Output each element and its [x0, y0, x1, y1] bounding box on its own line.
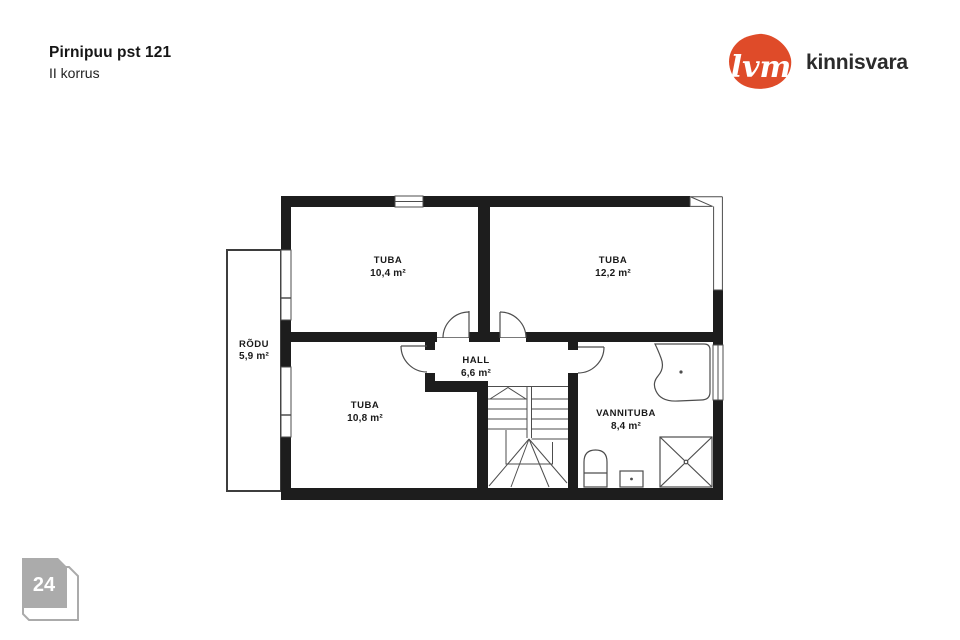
- room-label-tuba-1: TUBA 10,4 m²: [370, 255, 406, 279]
- floor-plan-svg: lvm kinnisvara: [0, 0, 960, 640]
- room-name: VANNITUBA: [596, 408, 656, 419]
- door-tuba-2: [500, 312, 526, 338]
- room-name: HALL: [462, 355, 489, 366]
- sink: [620, 471, 643, 487]
- room-label-vannituba: VANNITUBA 8,4 m²: [596, 408, 656, 432]
- room-labels: TUBA 10,4 m² TUBA 12,2 m² RÕDU 5,9 m² TU…: [239, 255, 656, 432]
- toilet: [584, 450, 607, 487]
- bathtub: [654, 344, 710, 401]
- room-name: TUBA: [351, 400, 379, 411]
- room-label-rodu: RÕDU 5,9 m²: [239, 339, 270, 362]
- balcony-door-upper: [281, 250, 291, 320]
- page-number: 24: [33, 574, 56, 596]
- door-bathroom: [578, 347, 604, 373]
- room-label-tuba-2: TUBA 12,2 m²: [595, 255, 631, 279]
- room-area: 10,4 m²: [370, 268, 406, 279]
- room-name: RÕDU: [239, 339, 269, 350]
- room-label-hall: HALL 6,6 m²: [461, 355, 492, 379]
- lvm-logo-text: lvm: [731, 50, 792, 85]
- corner-window: [690, 196, 723, 290]
- window-bathroom: [713, 345, 723, 400]
- logo: lvm kinnisvara: [729, 34, 908, 89]
- room-area: 6,6 m²: [461, 368, 492, 379]
- page-number-badge: 24: [22, 558, 78, 620]
- balcony-door-lower: [281, 367, 291, 437]
- room-area: 5,9 m²: [239, 351, 270, 362]
- staircase: [488, 387, 568, 488]
- door-tuba-3: [401, 346, 427, 372]
- room-name: TUBA: [374, 255, 402, 266]
- window-top: [395, 196, 423, 207]
- room-name: TUBA: [599, 255, 627, 266]
- room-label-tuba-3: TUBA 10,8 m²: [347, 400, 383, 424]
- logo-wordmark: kinnisvara: [806, 51, 908, 74]
- room-area: 8,4 m²: [611, 421, 642, 432]
- page: Pirnipuu pst 121 II korrus lvm kinnisvar…: [0, 0, 960, 640]
- shower: [660, 437, 712, 487]
- room-area: 10,8 m²: [347, 413, 383, 424]
- windows: [281, 196, 723, 437]
- door-tuba-1: [437, 311, 469, 338]
- room-area: 12,2 m²: [595, 268, 631, 279]
- balcony-outline: [227, 250, 281, 491]
